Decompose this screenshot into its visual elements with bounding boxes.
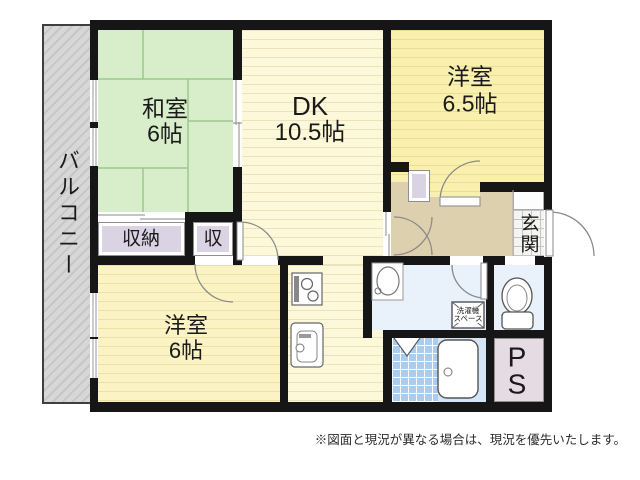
western65-size: 6.5帖 (443, 93, 498, 116)
washbasin-icon (372, 263, 403, 300)
linework-layer (0, 0, 640, 480)
bath-folding-door-icon (394, 338, 420, 356)
closet-label: 収納 (122, 230, 160, 249)
western65-name: 洋室 (447, 66, 493, 89)
pipe-space-label: PS (506, 344, 528, 397)
kitchen-sink-icon (291, 323, 323, 367)
toilet-icon (502, 278, 533, 329)
genkan-label: 玄関 (519, 213, 538, 255)
dk-size: 10.5帖 (275, 121, 346, 145)
dk-name: DK (292, 93, 328, 119)
floorplan: バルコニー (0, 0, 640, 480)
western6-size: 6帖 (169, 340, 203, 362)
laundry-space-label-line2: スペース (453, 315, 482, 323)
washitsu-size: 6帖 (147, 123, 183, 146)
washitsu-name: 和室 (142, 98, 188, 121)
window-icon (90, 80, 98, 378)
stove-icon (292, 273, 322, 305)
closet-small-label: 収 (203, 230, 222, 249)
disclaimer-note: ※図面と現況が異なる場合は、現況を優先いたします。 (315, 429, 626, 448)
bathtub-icon (438, 340, 478, 398)
western6-name: 洋室 (164, 315, 208, 337)
